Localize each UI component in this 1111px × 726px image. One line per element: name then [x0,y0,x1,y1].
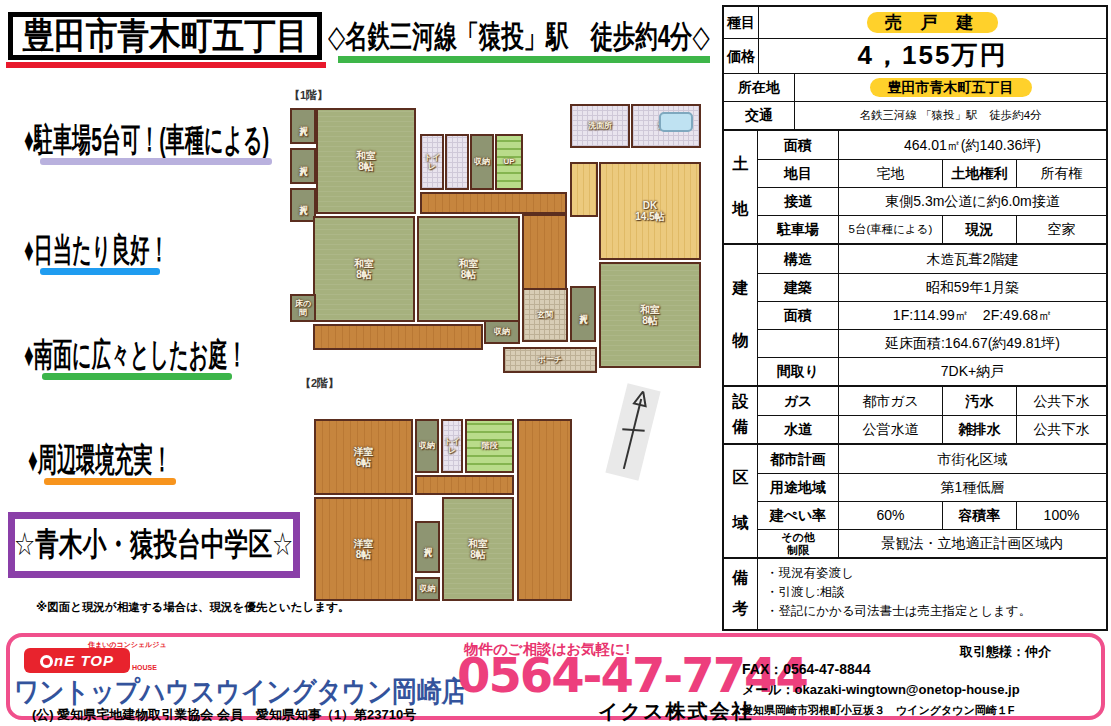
floorplan-room: UP [495,134,523,190]
onetop-logo: nE TOP [24,648,130,673]
table-cell: 地目 [758,160,838,187]
highlight-underline [40,268,160,275]
bathtub-icon [659,112,693,132]
floorplan-room: 収納 [484,320,520,344]
floorplan-room: 洋室 6帖 [314,419,413,495]
table-cell: 宅地 [838,160,942,187]
table-cell: 名鉄三河線 「猿投」駅 徒歩約4分 [794,102,1106,129]
table-cell: 建築 [758,274,838,301]
footer-bar: 住まいのコンシェルジュ nE TOP HOUSE ワントップハウスウイングタウン… [6,633,1105,720]
table-cell: 第1種低層 [838,474,1106,501]
floorplan-room [570,162,598,217]
table-row: その他 制限景観法・立地適正計画区域内 [758,529,1106,557]
fax-number: FAX：0564-47-8844 [742,661,870,679]
section-label: 備考 [724,559,758,629]
table-row: 面積464.01㎡(約140.36坪) [758,131,1106,159]
table-row: 駐車場5台(車種による)現況空家 [758,215,1106,243]
table-cell: 景観法・立地適正計画区域内 [838,530,1106,557]
table-cell: その他 制限 [758,530,838,557]
highlight-underline [44,478,176,485]
table-row: 建築昭和59年1月築 [758,273,1106,301]
table-cell: 面積 [758,302,838,329]
table-section: 設備ガス都市ガス汚水公共下水水道公営水道雑排水公共下水 [724,385,1106,443]
floorplan-room: 床の間 [290,294,316,322]
table-cell: 公共下水 [1016,387,1106,415]
floorplan-room [445,134,469,190]
table-cell: 公営水道 [838,416,942,443]
school-district-box: ☆青木小・猿投台中学区☆ [8,512,300,578]
room-label: DK 14.5帖 [635,200,664,223]
room-label: 和室 8帖 [356,150,376,173]
floorplan-room: 押入れ [415,521,440,573]
table-row: 間取り7DK+納戸 [758,357,1106,385]
property-title-box: 豊田市青木町五丁目 [8,12,322,60]
section-label: 建物 [724,245,758,385]
room-label: 収納 [419,441,435,450]
section-label: 設備 [724,387,758,443]
table-cell: 所在地 [724,74,794,101]
room-label: トイレ [422,153,442,171]
room-label: 押入れ [298,160,307,172]
table-row: ・現況有姿渡し ・引渡し:相談 ・登記にかかる司法書士は売主指定とします。 [758,559,1106,629]
logo-house-label: HOUSE [132,664,157,671]
floorplan-room: 押入れ [290,108,316,144]
table-cell: 東側5.3m公道に約6.0m接道 [838,188,1106,215]
table-cell: 駐車場 [758,216,838,243]
table-row: 地目宅地土地権利所有権 [758,159,1106,187]
table-cell: 構造 [758,245,838,273]
table-cell: 現況 [942,216,1016,243]
room-label: UP [503,157,514,166]
floorplan-room [522,214,567,294]
room-label: 洗面所 [588,121,612,130]
floorplan-room: 押入れ [290,148,316,184]
room-label: 押入れ [423,541,432,553]
table-row: 価格4，155万円 [724,38,1106,73]
floor2-plan: 洋室 6帖収納トイレ階段洋室 8帖押入れ収納和室 8帖 [312,417,574,603]
table-cell [758,330,838,357]
transaction-type: 取引態様：仲介 [960,643,1051,661]
table-section: 建物構造木造瓦葺2階建建築昭和59年1月築面積1F:114.99㎡ 2F:49.… [724,243,1106,385]
highlight-text: ♦日当たり良好！ [24,228,169,273]
floorplan-room: 洗面所 [570,104,630,148]
table-cell: 間取り [758,358,838,385]
section-label: 区域 [724,445,758,557]
highlight-text: ♦南面に広々としたお庭！ [24,333,247,378]
table-cell: ・現況有姿渡し ・引渡し:相談 ・登記にかかる司法書士は売主指定とします。 [758,559,1106,629]
table-row: 種目売 戸 建 [724,7,1106,38]
table-cell: 木造瓦葺2階建 [838,245,1106,273]
table-cell: 都市ガス [838,387,942,415]
table-section: 土地面積464.01㎡(約140.36坪)地目宅地土地権利所有権接道東側5.3m… [724,129,1106,243]
table-row: 面積1F:114.99㎡ 2F:49.68㎡ [758,301,1106,329]
table-cell: 延床面積:164.67(約49.81坪) [838,330,1106,357]
table-cell: 汚水 [942,387,1016,415]
floorplan-room: 和室 8帖 [316,108,416,214]
agency-name: イクス株式会社 [598,698,753,725]
table-cell: 水道 [758,416,838,443]
table-cell: 100% [1016,502,1106,529]
table-cell: 売 戸 建 [758,7,1106,38]
room-label: 和室 8帖 [354,258,374,281]
room-label: 押入れ [578,308,587,320]
room-label: 洋室 8帖 [354,538,374,561]
table-cell: 昭和59年1月築 [838,274,1106,301]
floorplan-room: 洋室 8帖 [314,497,413,601]
room-label: 和室 8帖 [468,538,488,561]
logo-o-icon [40,655,53,668]
table-row: 建ぺい率60%容積率100% [758,501,1106,529]
table-cell: 464.01㎡(約140.36坪) [838,131,1106,159]
highlight-text: ♦駐車場5台可！(車種による) [24,118,269,163]
room-label: 玄関 [537,310,553,319]
room-label: 収納 [474,157,490,166]
table-cell: 土地権利 [942,160,1016,187]
table-cell: 雑排水 [942,416,1016,443]
highlight-underline [42,373,232,380]
table-cell: 用途地域 [758,474,838,501]
table-cell: ガス [758,387,838,415]
floorplan-room: 和室 8帖 [442,497,514,601]
table-cell: 所有権 [1016,160,1106,187]
floor2-label: 【2階】 [300,376,339,391]
title-underline [6,62,326,68]
room-label: ポーチ [538,355,562,364]
table-cell: 容積率 [942,502,1016,529]
table-row: 接道東側5.3m公道に約6.0m接道 [758,187,1106,215]
table-row: 所在地豊田市青木町五丁目 [724,73,1106,101]
table-cell: 4，155万円 [758,39,1106,73]
floorplan-room: 収納 [415,577,440,601]
room-label: 収納 [494,327,510,336]
floorplan-room: 玄関 [522,288,568,342]
flyer-page: 豊田市青木町五丁目 ◇名鉄三河線「猿投」駅 徒歩約4分◇ ♦駐車場5台可！(車種… [0,0,1111,726]
table-cell: 都市計画 [758,445,838,473]
floorplan-room [420,192,567,214]
table-cell: 価格 [724,39,758,73]
room-label: 床の間 [292,299,314,317]
table-row: ガス都市ガス汚水公共下水 [758,387,1106,415]
table-cell: 建ぺい率 [758,502,838,529]
floorplan-room [517,419,572,601]
floorplan-room: トイレ [420,134,444,190]
table-row: 延床面積:164.67(約49.81坪) [758,329,1106,357]
room-label: 押入れ [298,120,307,132]
table-row: 都市計画市街化区域 [758,445,1106,473]
table-cell: 7DK+納戸 [838,358,1106,385]
table-cell: 接道 [758,188,838,215]
office-address: 愛知県岡崎市羽根町小豆坂３ ウイングタウン岡崎１F [742,703,1015,718]
table-cell: 公共下水 [1016,416,1106,443]
license-line: (公) 愛知県宅地建物取引業協会 会員 愛知県知事（1）第23710号 [32,706,416,724]
floor1-plan: 押入れ押入れ押入れ和室 8帖トイレ収納UP和室 8帖和室 8帖洗面所浴室DK 1… [288,100,708,376]
highlight-bullet: ♦周辺環境充実！ [28,438,276,483]
floorplan-room: 和室 8帖 [417,216,520,322]
highlighted-value: 豊田市青木町五丁目 [870,78,1032,96]
floorplan-room: DK 14.5帖 [599,162,701,260]
property-title: 豊田市青木町五丁目 [22,12,307,61]
highlighted-value: 売 戸 建 [867,12,998,34]
north-arrow-icon [605,383,660,480]
table-cell: 交通 [724,102,794,129]
highlight-text: ♦周辺環境充実！ [28,438,172,483]
property-spec-table: 種目売 戸 建価格4，155万円所在地豊田市青木町五丁目交通名鉄三河線 「猿投」… [722,5,1108,631]
table-row: 構造木造瓦葺2階建 [758,245,1106,273]
table-cell: 5台(車種による) [838,216,942,243]
room-label: 収納 [420,584,436,593]
table-cell: 市街化区域 [838,445,1106,473]
floorplan-room: トイレ [441,419,463,473]
floorplan-room: 収納 [470,134,494,190]
room-label: 洋室 6帖 [354,446,374,469]
highlight-bullet: ♦日当たり良好！ [24,228,273,273]
table-row: 用途地域第1種低層 [758,473,1106,501]
section-label: 土地 [724,131,758,243]
table-cell: 60% [838,502,942,529]
table-section: 備考・現況有姿渡し ・引渡し:相談 ・登記にかかる司法書士は売主指定とします。 [724,557,1106,629]
floorplan-room: 押入れ [570,286,596,342]
floorplan-room: 収納 [415,419,439,473]
room-label: 和室 8帖 [459,258,479,281]
floorplan-room [313,324,483,350]
table-row: 水道公営水道雑排水公共下水 [758,415,1106,443]
floorplan-room: 和室 8帖 [599,262,701,368]
room-label: 階段 [482,441,498,450]
floorplan-room: ポーチ [503,347,597,373]
table-cell: 面積 [758,131,838,159]
table-cell: 豊田市青木町五丁目 [794,74,1106,101]
station-underline [338,56,710,63]
floorplan-room: 浴室 [631,104,701,148]
table-section: 区域都市計画市街化区域用途地域第1種低層建ぺい率60%容積率100%その他 制限… [724,443,1106,557]
table-row: 交通名鉄三河線 「猿投」駅 徒歩約4分 [724,101,1106,129]
disclaimer-note: ※図面と現況が相違する場合は、現況を優先といたします。 [36,600,349,615]
floorplan-room: 階段 [465,419,514,473]
table-cell: 空家 [1016,216,1106,243]
room-label: 和室 8帖 [640,304,660,327]
email-address: メール：okazaki-wingtown@onetop-house.jp [742,681,1020,699]
room-label: 押入れ [298,199,307,211]
room-label: トイレ [443,437,461,455]
floorplan-room: 和室 8帖 [313,216,415,322]
floorplan-room [415,475,514,495]
table-section: 種目売 戸 建価格4，155万円所在地豊田市青木町五丁目交通名鉄三河線 「猿投」… [724,7,1106,129]
table-cell: 種目 [724,7,758,38]
highlight-underline [40,158,272,165]
table-cell: 1F:114.99㎡ 2F:49.68㎡ [838,302,1106,329]
